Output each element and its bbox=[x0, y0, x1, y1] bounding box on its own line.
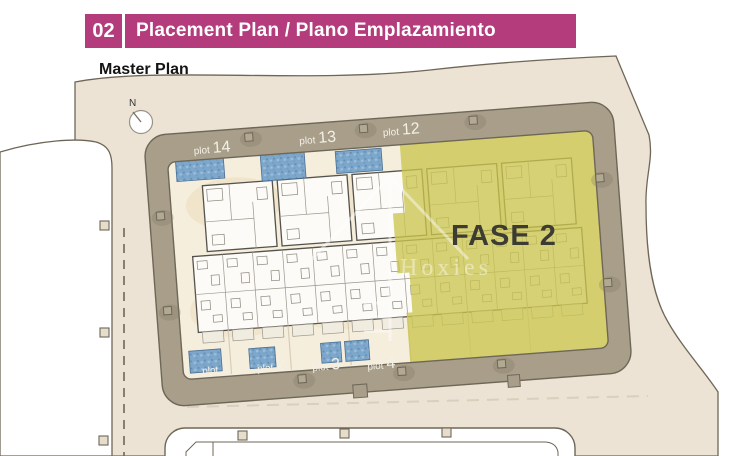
west-parcel bbox=[0, 140, 112, 456]
compass-north-label: N bbox=[129, 98, 136, 109]
page-title: Master Plan bbox=[99, 61, 189, 79]
south-parcel bbox=[165, 428, 575, 456]
section-number: 02 bbox=[85, 14, 125, 48]
watermark-text: Hoxies bbox=[400, 255, 492, 281]
main-parcel: plot14 plot13 plot12 plot1 plot2 plot3 p… bbox=[143, 101, 633, 413]
section-header-title: Placement Plan / Plano Emplazamiento bbox=[125, 14, 576, 48]
page: plot14 plot13 plot12 plot1 plot2 plot3 p… bbox=[0, 0, 756, 456]
section-header-bar: 02 Placement Plan / Plano Emplazamiento bbox=[85, 14, 576, 48]
phase2-label: FASE 2 bbox=[451, 220, 557, 253]
